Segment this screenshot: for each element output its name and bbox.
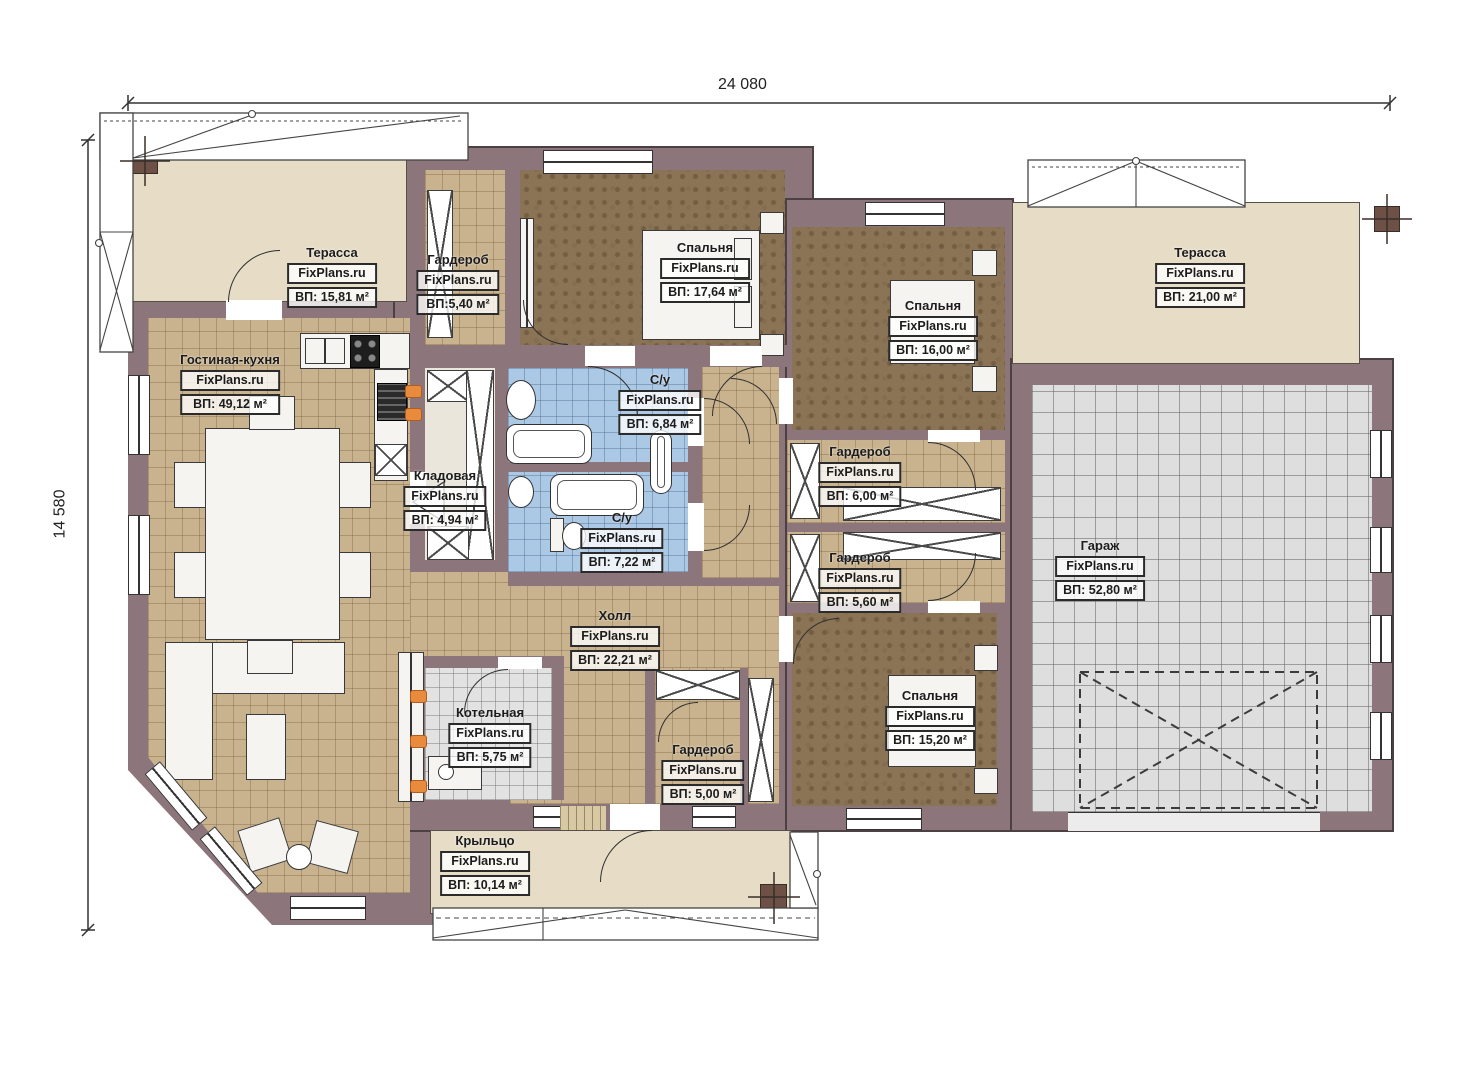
radiator-kitchen-2	[405, 408, 422, 421]
room-label-terrace-right: Терасса FixPlans.ru ВП: 21,00 м²	[1155, 245, 1245, 308]
room-area: ВП: 10,14 м²	[440, 875, 530, 896]
watermark-badge: FixPlans.ru	[1155, 263, 1245, 284]
bedroom-2-nightstand-2	[972, 366, 997, 392]
wall-wardrobe500-left	[645, 668, 655, 804]
window-garage-right-4	[1370, 712, 1392, 760]
room-label-bedroom-1: Спальня FixPlans.ru ВП: 17,64 м²	[660, 240, 750, 303]
radiator-boiler-1	[410, 690, 427, 703]
watermark-badge: FixPlans.ru	[440, 851, 530, 872]
room-label-garage: Гараж FixPlans.ru ВП: 52,80 м²	[1055, 538, 1145, 601]
watermark-badge: FixPlans.ru	[818, 568, 901, 589]
dining-table	[205, 428, 340, 640]
room-label-terrace-left: Терасса FixPlans.ru ВП: 15,81 м²	[287, 245, 377, 308]
watermark-badge: FixPlans.ru	[1055, 556, 1145, 577]
kitchen-cabinet	[375, 444, 407, 476]
bedroom-1-nightstand-1	[760, 212, 784, 234]
kitchen-stove	[350, 335, 380, 368]
dining-chair-bottom	[247, 640, 293, 674]
watermark-badge: FixPlans.ru	[287, 263, 377, 284]
window-bedroom-3-bottom	[846, 808, 922, 830]
kitchen-sink	[305, 338, 345, 364]
sofa-vertical	[165, 642, 213, 780]
bedroom-3-nightstand-2	[974, 768, 998, 794]
window-living-left-1	[128, 375, 150, 455]
watermark-badge: FixPlans.ru	[661, 760, 744, 781]
room-area: ВП: 7,22 м²	[580, 552, 663, 573]
room-area: ВП: 52,80 м²	[1055, 580, 1145, 601]
room-label-porch: Крыльцо FixPlans.ru ВП: 10,14 м²	[440, 833, 530, 896]
garage-door-opening	[1068, 812, 1320, 831]
room-name: Холл	[570, 608, 660, 623]
chimney-porch	[760, 884, 787, 911]
room-label-wardrobe-top: Гардероб FixPlans.ru ВП:5,40 м²	[416, 252, 499, 315]
pantry-cabinet-tall	[466, 370, 494, 560]
room-area: ВП: 15,20 м²	[885, 730, 975, 751]
room-area: ВП: 4,94 м²	[403, 510, 486, 531]
door-gap-wardrobe-600	[928, 430, 980, 442]
room-name: Гардероб	[416, 252, 499, 267]
watermark-badge: FixPlans.ru	[180, 370, 280, 391]
hall-passage-floor	[410, 572, 512, 668]
watermark-badge: FixPlans.ru	[570, 626, 660, 647]
room-name: Гардероб	[661, 742, 744, 757]
window-living-left-2	[128, 515, 150, 595]
room-name: Спальня	[660, 240, 750, 255]
room-name: Гараж	[1055, 538, 1145, 553]
watermark-badge: FixPlans.ru	[818, 462, 901, 483]
radiator-kitchen-1	[405, 385, 422, 398]
room-label-wardrobe-500: Гардероб FixPlans.ru ВП: 5,00 м²	[661, 742, 744, 805]
bath-1-sink	[506, 380, 536, 420]
side-table	[286, 844, 312, 870]
pantry-cabinet-bottom	[427, 526, 469, 560]
bedroom-1-nightstand-2	[760, 334, 784, 356]
room-area: ВП: 16,00 м²	[888, 340, 978, 361]
wardrobe-600-cabinet-left	[790, 443, 820, 519]
door-gap-bedroom-2	[779, 378, 793, 424]
window-bedroom-1-top	[543, 150, 653, 174]
door-gap-wardrobe-560	[928, 601, 980, 613]
chimney-terrace-right	[1374, 206, 1400, 232]
watermark-badge: FixPlans.ru	[448, 723, 531, 744]
room-name: Гардероб	[818, 444, 901, 459]
door-gap-bedroom-1b	[710, 346, 762, 366]
room-area: ВП: 15,81 м²	[287, 287, 377, 308]
dining-chair-left-1	[174, 462, 206, 508]
wardrobe-500-cabinet-top	[656, 670, 740, 700]
door-gap-entrance	[610, 804, 660, 830]
entry-doormat	[560, 806, 606, 830]
room-label-bath-2: С/у FixPlans.ru ВП: 7,22 м²	[580, 510, 663, 573]
room-name: Крыльцо	[440, 833, 530, 848]
room-area: ВП: 5,75 м²	[448, 747, 531, 768]
chimney-terrace-left	[132, 148, 158, 174]
bath-1-tub	[506, 424, 592, 464]
watermark-badge: FixPlans.ru	[885, 706, 975, 727]
room-label-wardrobe-600: Гардероб FixPlans.ru ВП: 6,00 м²	[818, 444, 901, 507]
wall-bath2-hall	[508, 572, 702, 586]
hall-closet	[748, 678, 774, 802]
bedroom-2-nightstand-1	[972, 250, 997, 276]
room-area: ВП: 5,00 м²	[661, 784, 744, 805]
room-name: Терасса	[1155, 245, 1245, 260]
room-label-bedroom-3: Спальня FixPlans.ru ВП: 15,20 м²	[885, 688, 975, 751]
room-area: ВП:5,40 м²	[416, 294, 499, 315]
watermark-badge: FixPlans.ru	[403, 486, 486, 507]
room-name: Гардероб	[818, 550, 901, 565]
wall-boiler-right	[552, 668, 564, 800]
room-label-bath-1: С/у FixPlans.ru ВП: 6,84 м²	[618, 372, 701, 435]
window-garage-right-2	[1370, 527, 1392, 573]
radiator-boiler-3	[410, 780, 427, 793]
wall-pantry-bottom	[425, 560, 495, 572]
watermark-badge: FixPlans.ru	[660, 258, 750, 279]
watermark-badge: FixPlans.ru	[416, 270, 499, 291]
room-area: ВП: 22,21 м²	[570, 650, 660, 671]
dimension-height: 14 580	[51, 490, 69, 539]
room-name: Терасса	[287, 245, 377, 260]
watermark-badge: FixPlans.ru	[580, 528, 663, 549]
door-gap-terrace	[226, 300, 282, 320]
window-living-bottom	[290, 896, 366, 920]
room-area: ВП: 5,60 м²	[818, 592, 901, 613]
floor-plan-canvas: 24 080 14 580 Терасса FixPlans.ru ВП: 15…	[0, 0, 1473, 1080]
room-label-bedroom-2: Спальня FixPlans.ru ВП: 16,00 м²	[888, 298, 978, 361]
watermark-badge: FixPlans.ru	[618, 390, 701, 411]
door-gap-bath-2	[688, 503, 704, 551]
bath-2-sink	[508, 476, 534, 508]
room-label-boiler: Котельная FixPlans.ru ВП: 5,75 м²	[448, 705, 531, 768]
door-gap-boiler	[498, 657, 542, 669]
room-area: ВП: 17,64 м²	[660, 282, 750, 303]
room-area: ВП: 49,12 м²	[180, 394, 280, 415]
dining-chair-right-1	[339, 462, 371, 508]
radiator-boiler-2	[410, 735, 427, 748]
room-label-pantry: Кладовая FixPlans.ru ВП: 4,94 м²	[403, 468, 486, 531]
pantry-cabinet-top	[427, 370, 469, 402]
dining-chair-right-2	[339, 552, 371, 598]
room-name: Спальня	[888, 298, 978, 313]
room-name: Кладовая	[403, 468, 486, 483]
room-name: Спальня	[885, 688, 975, 703]
room-area: ВП: 21,00 м²	[1155, 287, 1245, 308]
room-area: ВП: 6,00 м²	[818, 486, 901, 507]
room-area: ВП: 6,84 м²	[618, 414, 701, 435]
coffee-table	[246, 714, 286, 780]
door-gap-bedroom-3	[779, 616, 793, 662]
wardrobe-560-cabinet-left	[790, 534, 820, 602]
room-name: Гостиная-кухня	[180, 352, 280, 367]
window-bedroom-2-top	[865, 202, 945, 226]
room-name: Котельная	[448, 705, 531, 720]
room-name: С/у	[618, 372, 701, 387]
bedroom-3-nightstand-1	[974, 645, 998, 671]
dimension-width: 24 080	[718, 76, 767, 94]
watermark-badge: FixPlans.ru	[888, 316, 978, 337]
room-label-wardrobe-560: Гардероб FixPlans.ru ВП: 5,60 м²	[818, 550, 901, 613]
window-garage-right-1	[1370, 430, 1392, 478]
dining-chair-left-2	[174, 552, 206, 598]
door-gap-bedroom-1a	[585, 346, 635, 366]
water-heater	[650, 430, 672, 494]
room-label-hall: Холл FixPlans.ru ВП: 22,21 м²	[570, 608, 660, 671]
window-garage-right-3	[1370, 615, 1392, 663]
room-name: С/у	[580, 510, 663, 525]
window-hall-bottom-2	[692, 806, 736, 828]
kitchen-cooktop	[377, 383, 407, 421]
room-label-living-kitchen: Гостиная-кухня FixPlans.ru ВП: 49,12 м²	[180, 352, 280, 415]
